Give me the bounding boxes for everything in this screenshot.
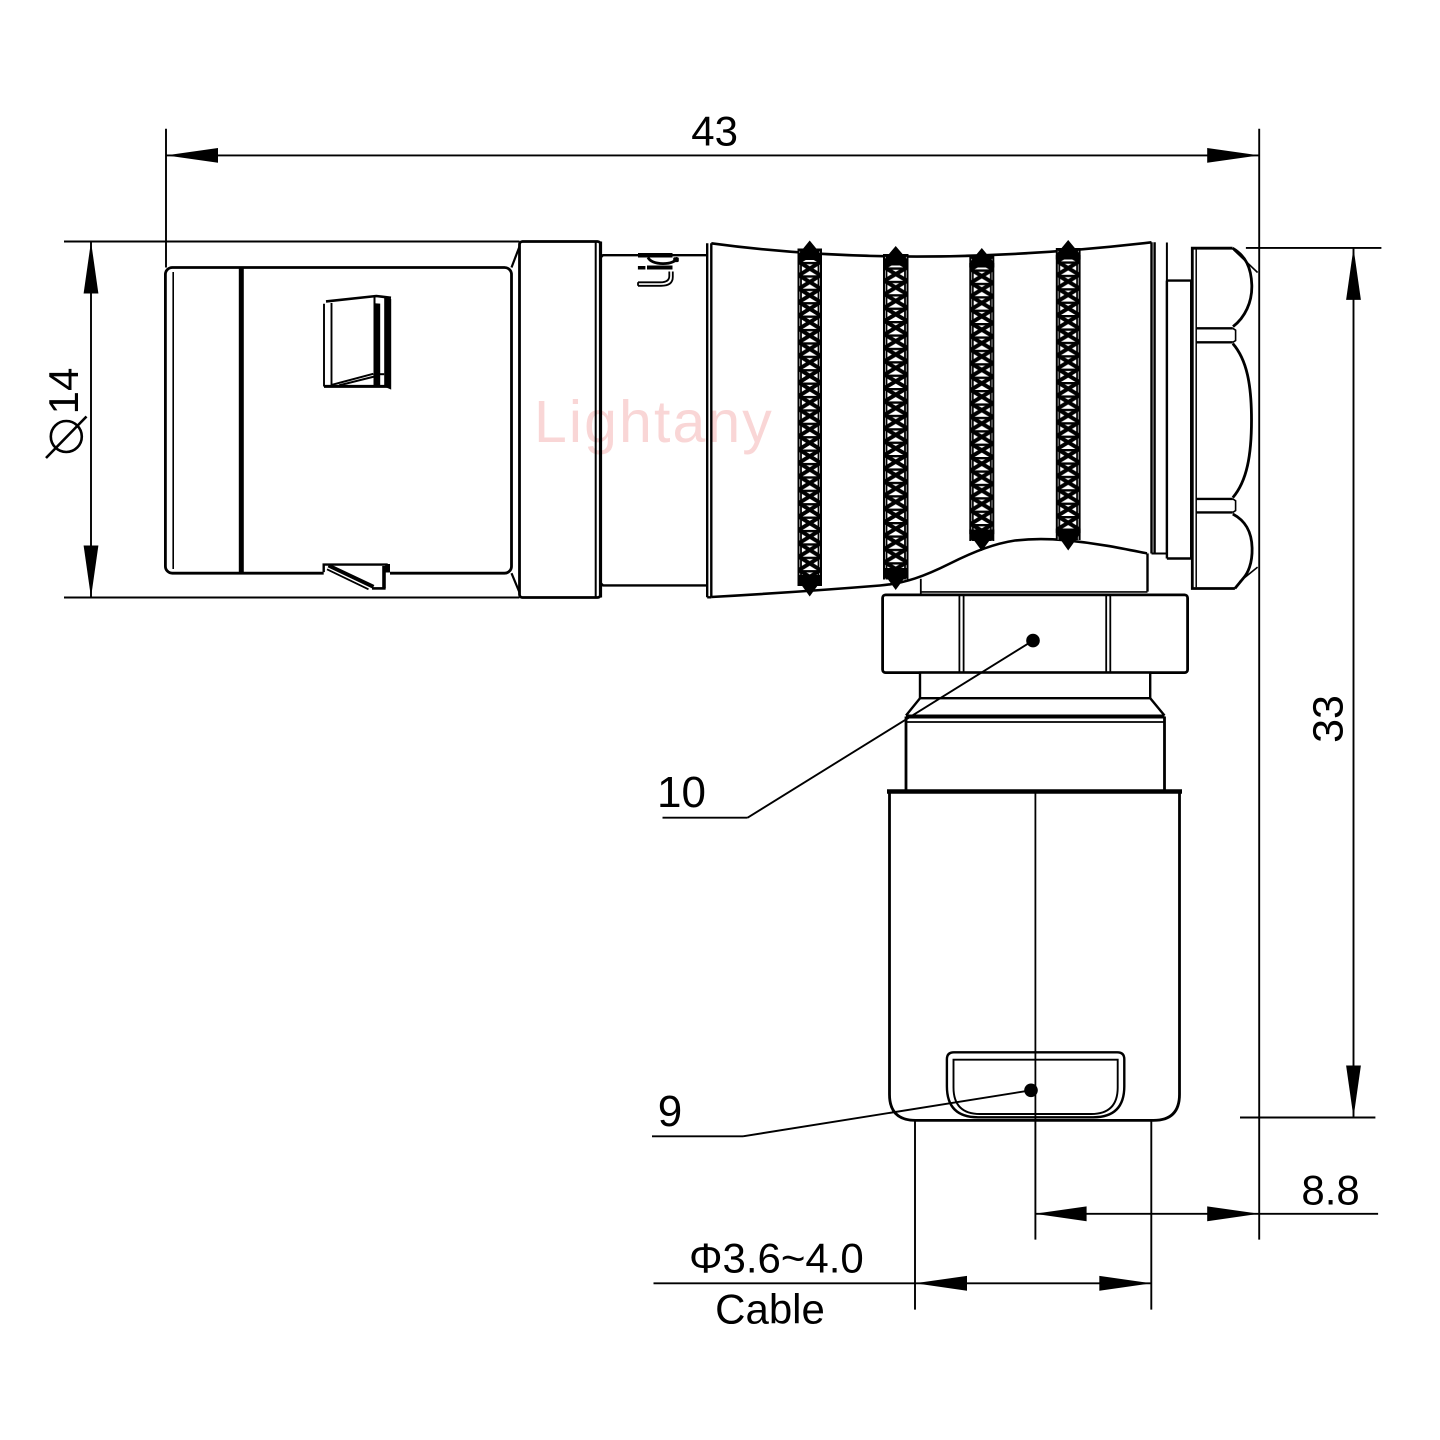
svg-text:8.8: 8.8 [1301,1167,1359,1214]
svg-text:Lightany: Lightany [534,389,774,455]
svg-text:43: 43 [691,108,738,155]
svg-text:33: 33 [1305,695,1353,743]
svg-text:Cable: Cable [715,1286,825,1333]
svg-text:10: 10 [657,768,706,817]
svg-text:9: 9 [658,1087,682,1136]
svg-text:14: 14 [40,368,87,415]
svg-text:Φ3.6~4.0: Φ3.6~4.0 [689,1235,864,1282]
